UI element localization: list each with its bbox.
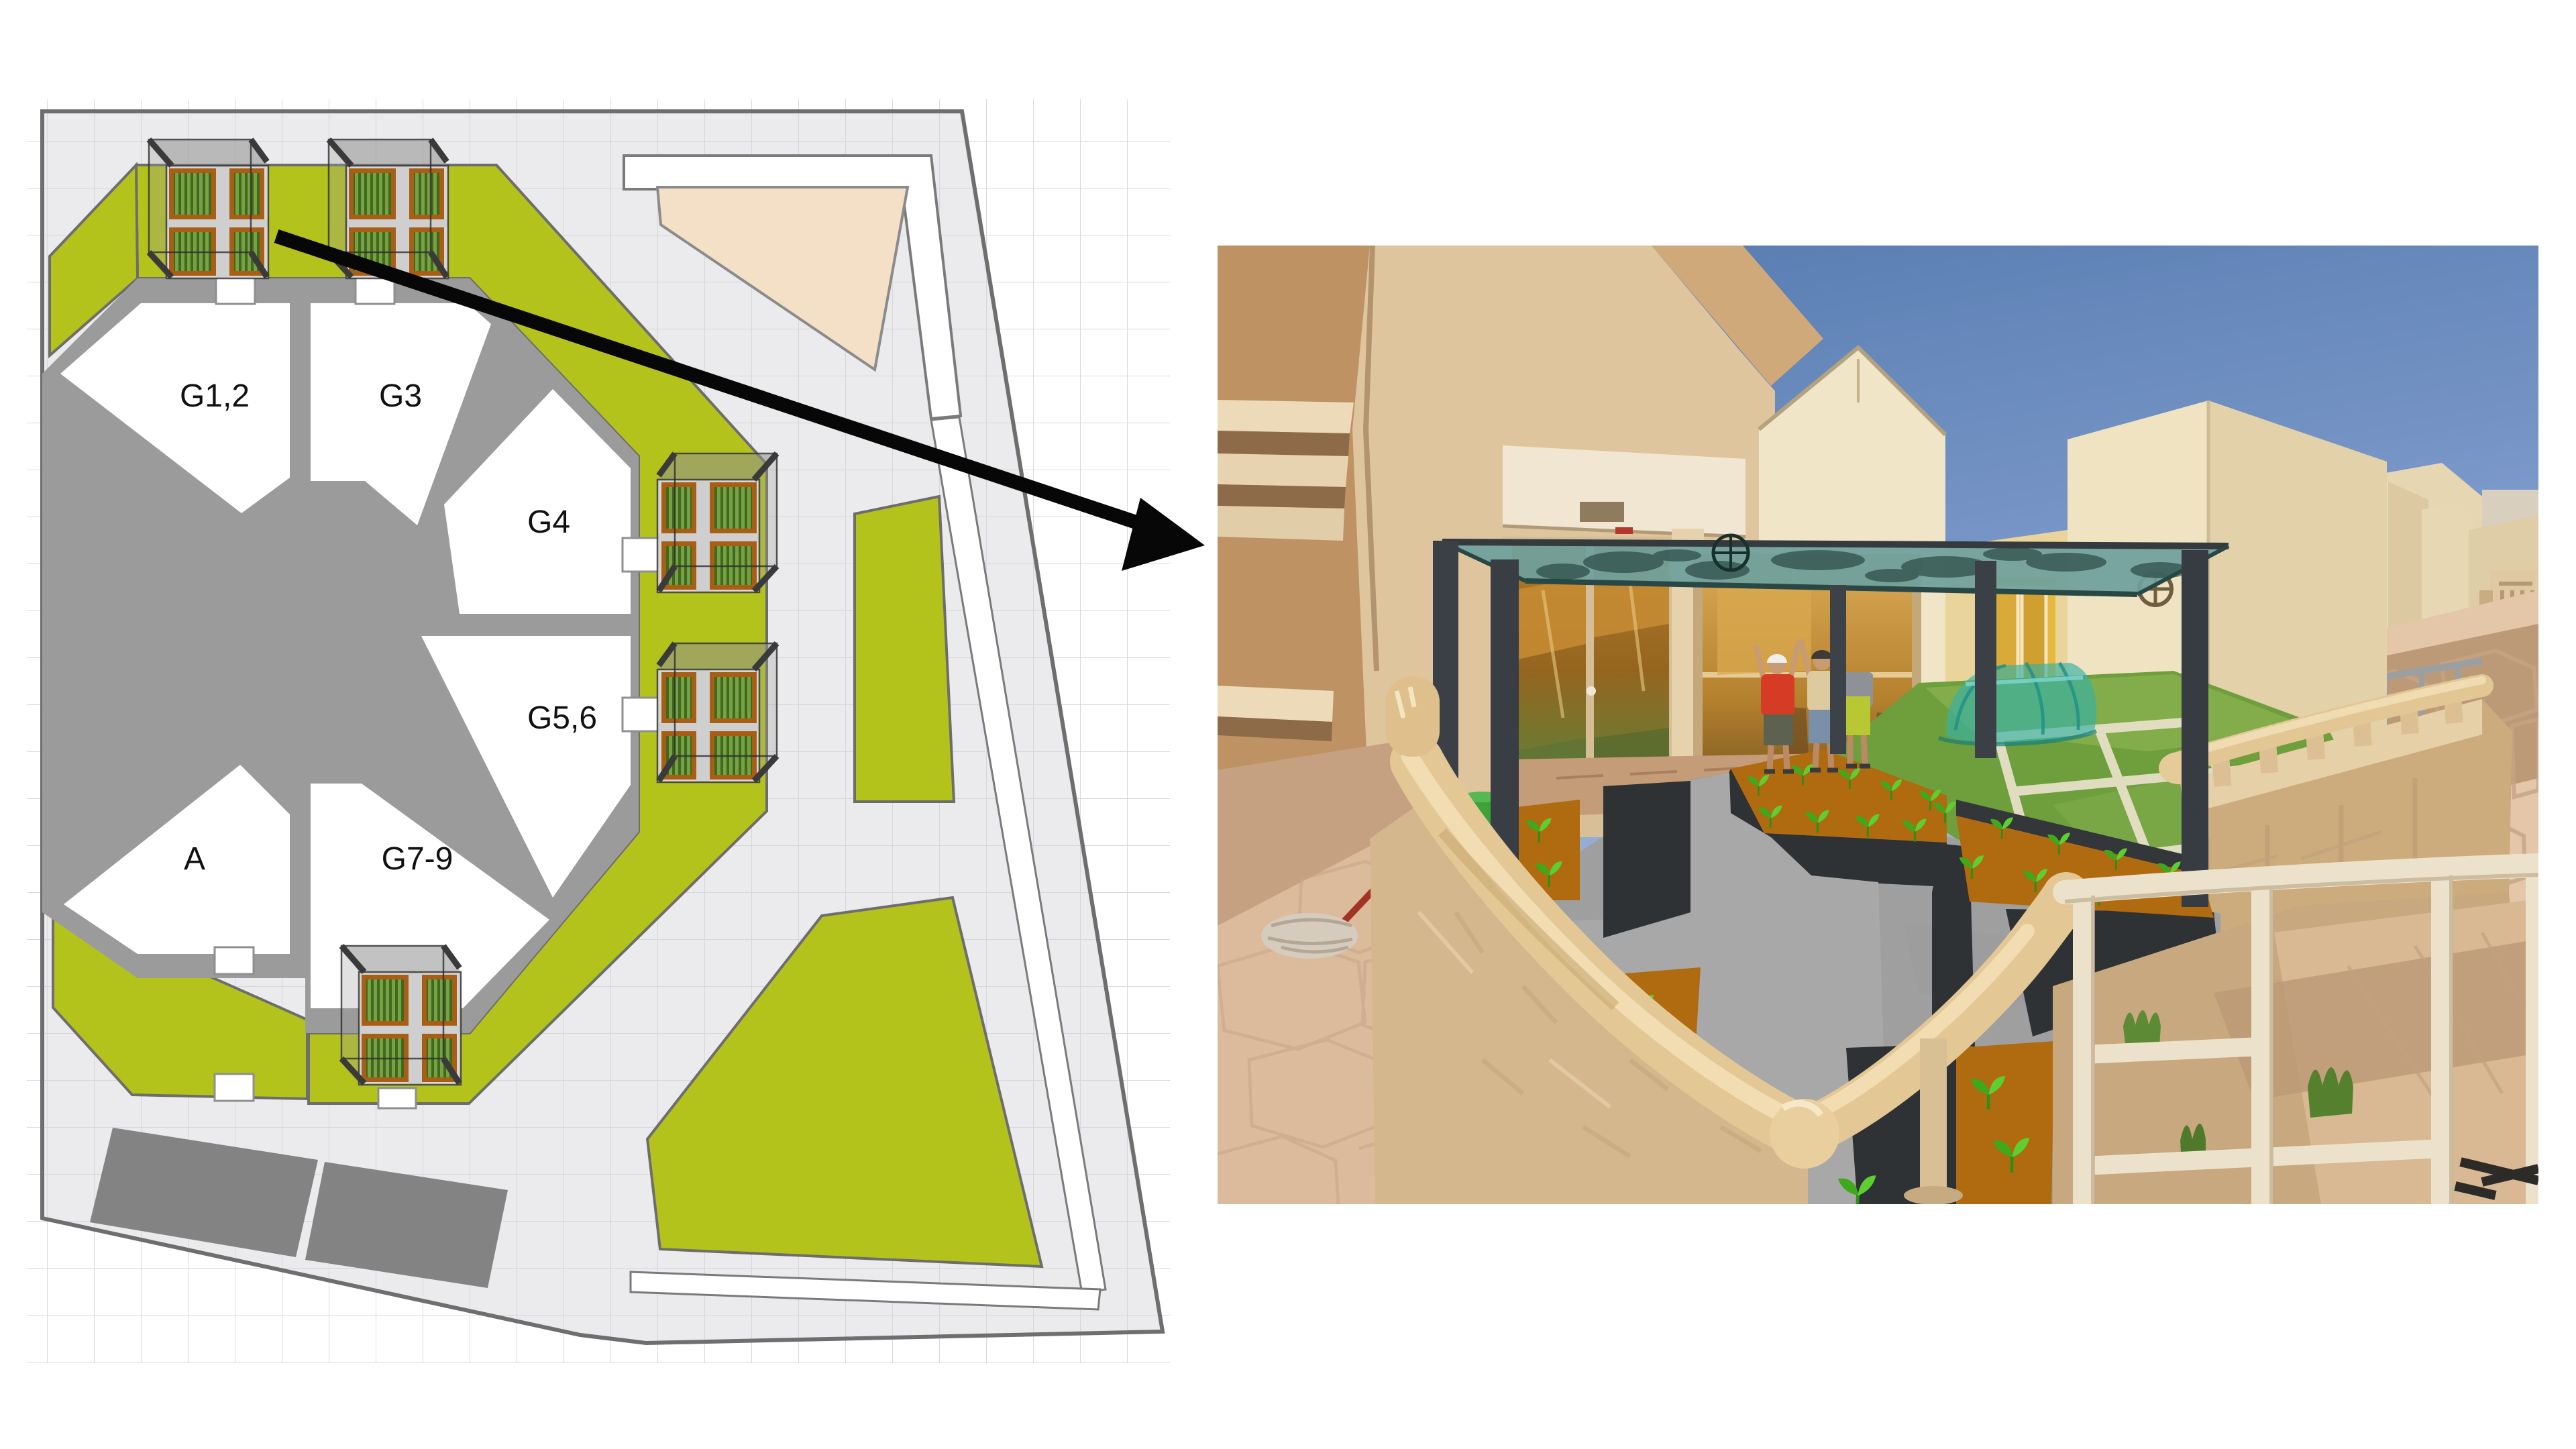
svg-text:G4: G4 [527, 504, 570, 540]
svg-text:A: A [184, 841, 205, 877]
svg-text:G7-9: G7-9 [382, 841, 453, 877]
svg-text:G5,6: G5,6 [527, 700, 597, 736]
svg-text:G1,2: G1,2 [180, 378, 250, 414]
svg-text:G3: G3 [379, 378, 422, 414]
